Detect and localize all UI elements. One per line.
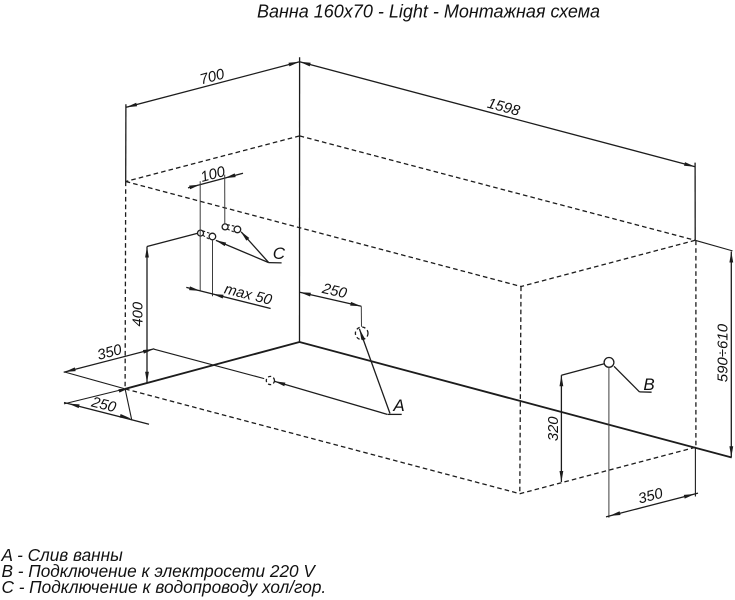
- svg-text:A: A: [392, 396, 404, 415]
- svg-text:320: 320: [546, 416, 562, 441]
- svg-text:400: 400: [130, 301, 146, 326]
- svg-text:C: C: [273, 244, 286, 263]
- svg-text:590÷610: 590÷610: [715, 323, 732, 382]
- svg-text:B: B: [643, 375, 654, 394]
- svg-text:Ванна 160x70 - Light - Монтажн: Ванна 160x70 - Light - Монтажная схема: [257, 2, 600, 22]
- svg-text:C - Подключение к водопроводу: C - Подключение к водопроводу хол/гор.: [2, 577, 327, 597]
